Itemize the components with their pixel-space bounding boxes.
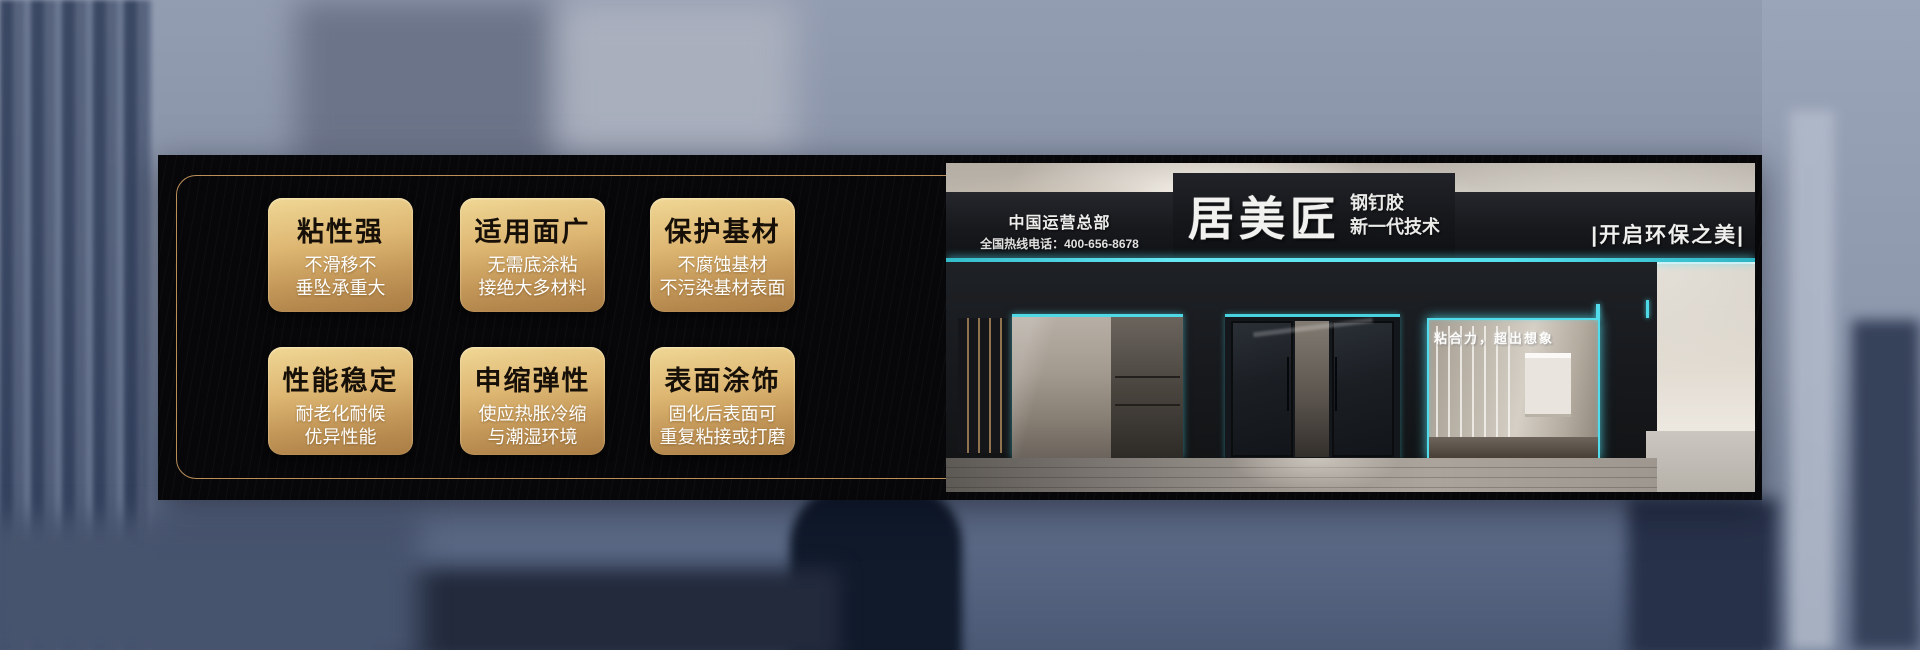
store-window-right: 粘合力，超出想象 xyxy=(1427,318,1600,460)
window-glass-slogan: 粘合力，超出想象 xyxy=(1434,328,1554,347)
store-facade: 粘合力，超出想象 xyxy=(946,262,1657,458)
promo-banner[interactable]: 粘性强 不滑移不 垂坠承重大 适用面广 无需底涂粘 接绝大多材料 保护基材 不腐… xyxy=(158,155,1762,500)
feature-card-line: 与潮湿环境 xyxy=(460,426,605,449)
door-handle xyxy=(1335,357,1337,411)
feature-card-line: 不污染基材表面 xyxy=(650,277,795,300)
feature-card-line: 不腐蚀基材 xyxy=(650,254,795,277)
page-background: 粘性强 不滑移不 垂坠承重大 适用面广 无需底涂粘 接绝大多材料 保护基材 不腐… xyxy=(0,0,1920,650)
feature-card-title: 粘性强 xyxy=(270,210,411,249)
feature-card-line: 使应热胀冷缩 xyxy=(460,403,605,426)
background-blur-shape xyxy=(0,518,420,650)
window-white-shelf xyxy=(1525,353,1571,416)
pavement-front xyxy=(946,458,1657,492)
door-glass-left xyxy=(1231,321,1293,457)
sign-right-slogan: |开启环保之美| xyxy=(1591,219,1745,249)
background-blur-shape xyxy=(1790,110,1834,650)
store-window-left xyxy=(1012,314,1183,458)
background-furniture-shape xyxy=(1852,320,1920,650)
brand-tech: 新一代技术 xyxy=(1350,216,1440,239)
brand-product: 钢钉胶 xyxy=(1350,192,1440,215)
feature-card: 表面涂饰 固化后表面可 重复粘接或打磨 xyxy=(650,347,795,455)
feature-card-title: 申缩弹性 xyxy=(462,359,603,398)
wood-slats xyxy=(958,318,1008,453)
feature-card: 性能稳定 耐老化耐候 优异性能 xyxy=(268,347,413,455)
door-center-interior xyxy=(1295,321,1329,457)
feature-card-title: 表面涂饰 xyxy=(652,359,793,398)
feature-card-line: 优异性能 xyxy=(268,426,413,449)
feature-card-line: 无需底涂粘 xyxy=(460,254,605,277)
feature-card-line: 垂坠承重大 xyxy=(268,277,413,300)
sign-hq-section: 中国运营总部 全国热线电话：400-656-8678 xyxy=(946,192,1173,258)
sign-brand-section: 居美匠 钢钉胶 新一代技术 xyxy=(1173,173,1455,258)
background-furniture-shape xyxy=(375,568,840,650)
feature-card-line: 不滑移不 xyxy=(268,254,413,277)
pavement-reflection xyxy=(1231,458,1399,492)
feature-card-title: 保护基材 xyxy=(652,210,793,249)
feature-card: 保护基材 不腐蚀基材 不污染基材表面 xyxy=(650,198,795,312)
feature-card-line: 固化后表面可 xyxy=(650,403,795,426)
background-furniture-shape xyxy=(1628,498,1778,650)
brand-name: 居美匠 xyxy=(1188,183,1341,249)
storefront-photo: 中国运营总部 全国热线电话：400-656-8678 居美匠 钢钉胶 新一代技术… xyxy=(946,163,1755,492)
feature-card-line: 耐老化耐候 xyxy=(268,403,413,426)
teal-accent-dash xyxy=(1646,300,1649,318)
feature-card: 粘性强 不滑移不 垂坠承重大 xyxy=(268,198,413,312)
pavement-right xyxy=(1646,431,1755,492)
sign-slogan-section: |开启环保之美| xyxy=(1455,192,1755,258)
feature-card-line: 重复粘接或打磨 xyxy=(650,426,795,449)
teal-corner-accent xyxy=(1596,304,1600,320)
background-blur-shape xyxy=(295,0,560,165)
background-blur-shape xyxy=(555,0,795,155)
door-handle xyxy=(1287,357,1289,411)
sign-hotline: 全国热线电话：400-656-8678 xyxy=(980,235,1139,252)
feature-card: 申缩弹性 使应热胀冷缩 与潮湿环境 xyxy=(460,347,605,455)
feature-card: 适用面广 无需底涂粘 接绝大多材料 xyxy=(460,198,605,312)
feature-card-line: 接绝大多材料 xyxy=(460,277,605,300)
feature-card-title: 性能稳定 xyxy=(270,359,411,398)
store-door xyxy=(1225,314,1400,460)
feature-card-title: 适用面广 xyxy=(462,210,603,249)
window-floor xyxy=(1429,437,1598,458)
glass-sheen xyxy=(1012,317,1183,458)
sign-hq-label: 中国运营总部 xyxy=(1008,209,1110,233)
brand-product-lines: 钢钉胶 新一代技术 xyxy=(1350,192,1440,239)
door-glass-right xyxy=(1332,321,1394,457)
